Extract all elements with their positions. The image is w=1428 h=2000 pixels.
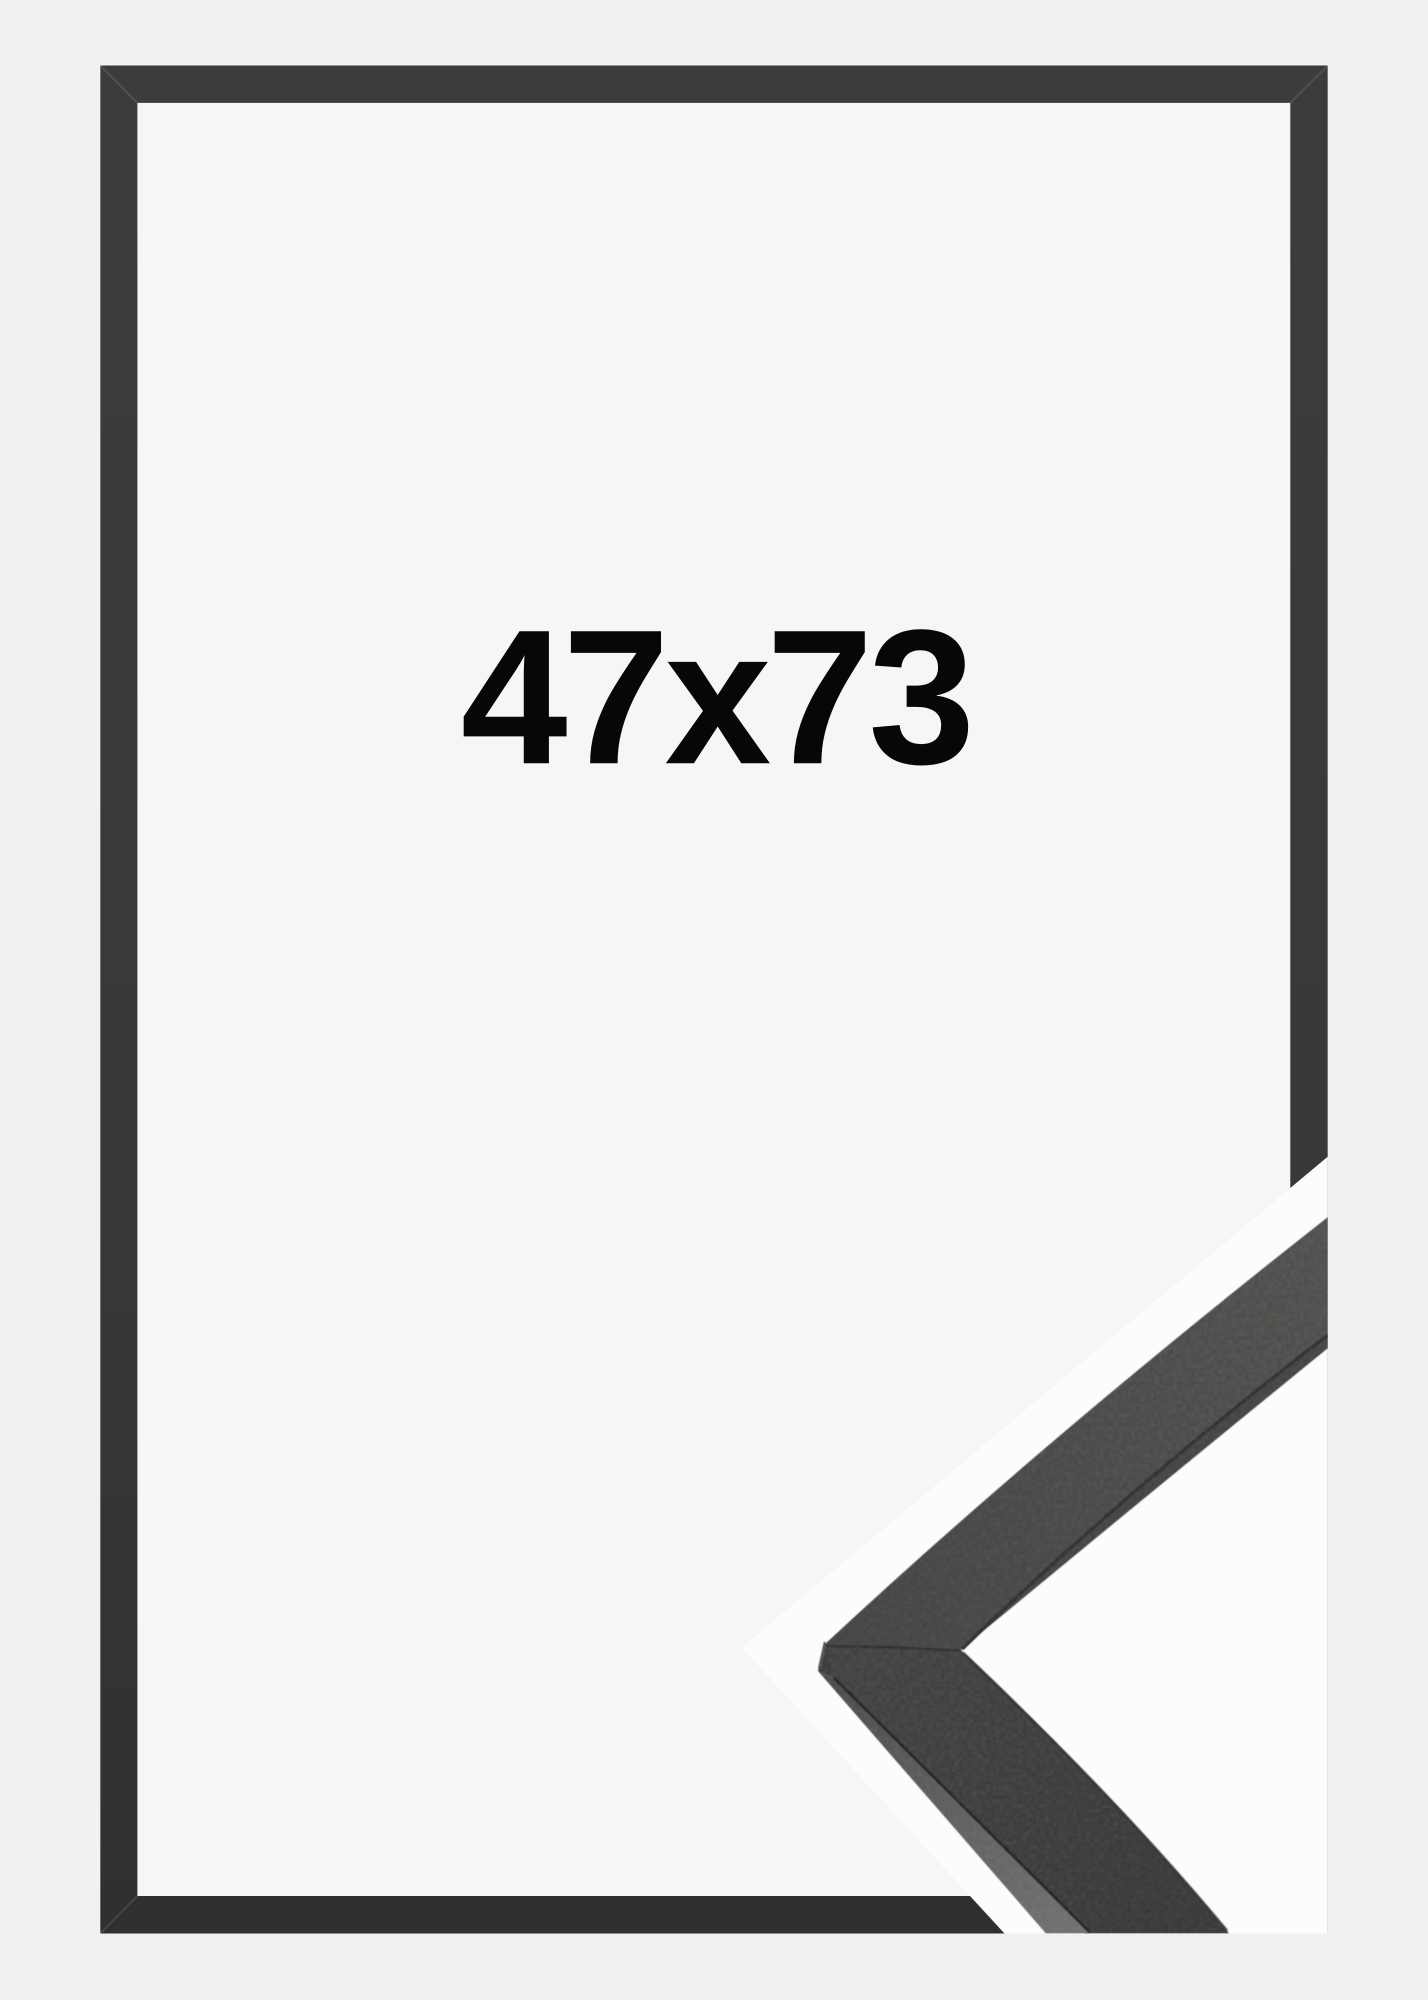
svg-text:47x73: 47x73 <box>461 589 970 804</box>
